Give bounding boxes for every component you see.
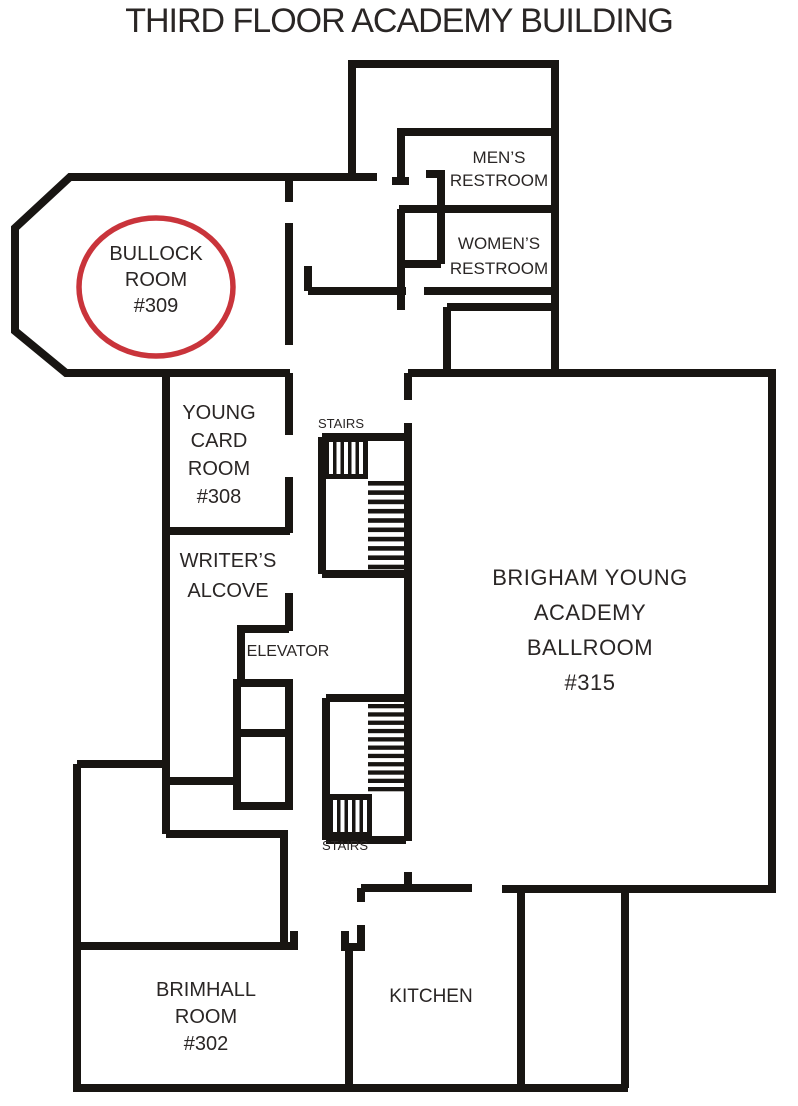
room-label-line: #302 [156, 1031, 256, 1058]
room-label-bullock: BULLOCK ROOM #309 [109, 241, 202, 319]
wall-top-vestibule [352, 64, 555, 373]
stairs-upper-hatch [322, 433, 406, 569]
stairs-lower-hatch [326, 704, 406, 840]
room-label-mens-restroom: MEN’S RESTROOM [450, 146, 548, 192]
floorplan-drawing [0, 0, 798, 1106]
room-label-line: BRIGHAM YOUNG [492, 560, 688, 595]
room-label-line: RESTROOM [450, 256, 548, 281]
room-label-line: ACADEMY [492, 595, 688, 630]
room-label-line: WRITER’S [180, 546, 277, 576]
room-label-line: #308 [182, 483, 255, 511]
floorplan-page: THIRD FLOOR ACADEMY BUILDING BULLOCK ROO… [0, 0, 798, 1106]
room-label-line: RESTROOM [450, 169, 548, 192]
room-label-line: BALLROOM [492, 630, 688, 665]
room-label-line: #309 [109, 293, 202, 319]
room-label-brimhall: BRIMHALL ROOM #302 [156, 977, 256, 1058]
room-label-line: ROOM [156, 1004, 256, 1031]
room-label-line: WOMEN’S [450, 231, 548, 256]
room-label-line: ROOM [182, 455, 255, 483]
room-label-line: BRIMHALL [156, 977, 256, 1004]
room-label-line: MEN’S [450, 146, 548, 169]
room-label-line: #315 [492, 665, 688, 700]
room-label-ballroom: BRIGHAM YOUNG ACADEMY BALLROOM #315 [492, 560, 688, 700]
room-label-young-card: YOUNG CARD ROOM #308 [182, 399, 255, 511]
room-label-writers-alcove: WRITER’S ALCOVE [180, 546, 277, 606]
room-label-line: YOUNG [182, 399, 255, 427]
room-label-womens-restroom: WOMEN’S RESTROOM [450, 231, 548, 281]
room-label-line: ROOM [109, 267, 202, 293]
room-label-kitchen: KITCHEN [389, 986, 472, 1008]
room-label-stairs-upper: STAIRS [318, 416, 364, 431]
room-label-stairs-lower: STAIRS [322, 838, 368, 853]
room-label-line: CARD [182, 427, 255, 455]
room-label-line: BULLOCK [109, 241, 202, 267]
page-title: THIRD FLOOR ACADEMY BUILDING [125, 2, 673, 41]
room-label-elevator: ELEVATOR [247, 643, 330, 661]
room-label-line: ALCOVE [180, 576, 277, 606]
